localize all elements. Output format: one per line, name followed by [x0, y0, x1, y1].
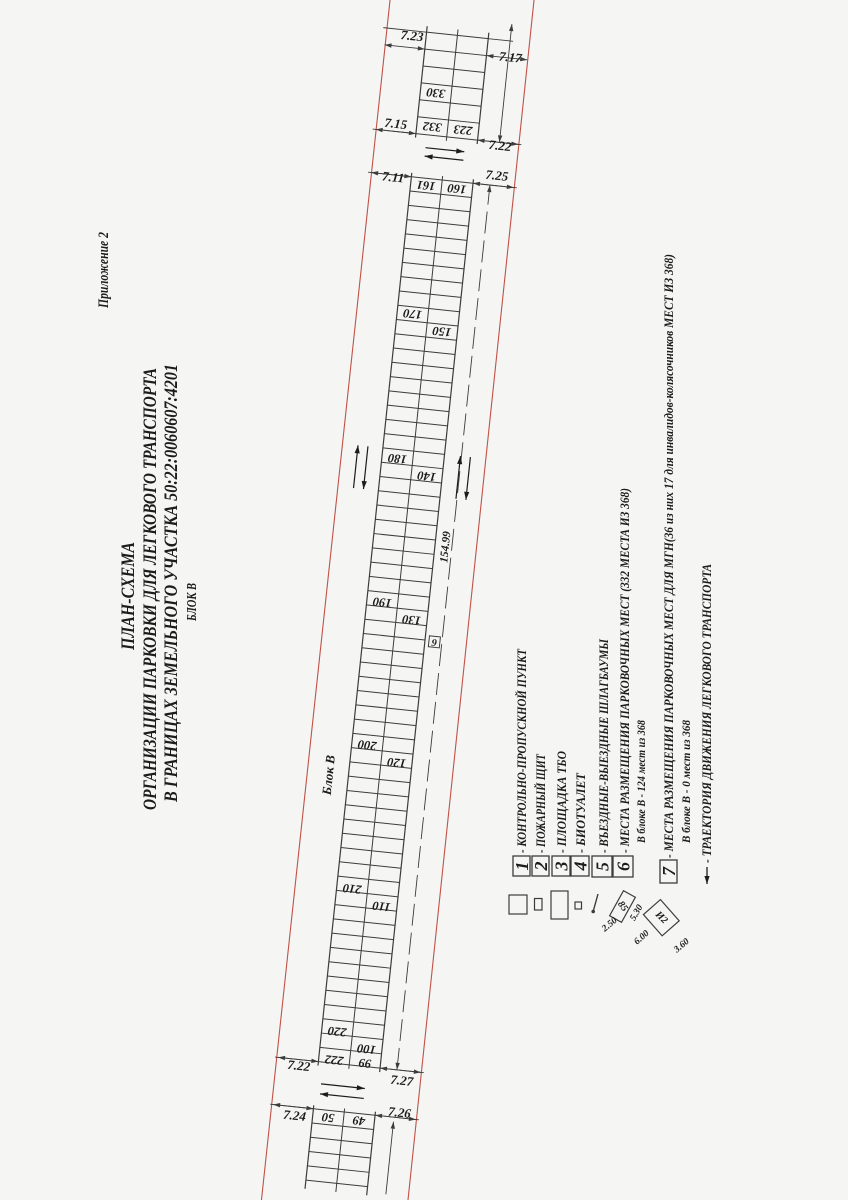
svg-text:190: 190: [371, 594, 392, 610]
svg-text:120: 120: [386, 755, 407, 771]
svg-text:2: 2: [531, 862, 551, 872]
svg-text:7: 7: [659, 866, 679, 876]
svg-text:223: 223: [453, 122, 474, 138]
svg-text:7.15: 7.15: [384, 115, 409, 132]
svg-text:- ВЪЕЗДНЫЕ-ВЫЕЗДНЫЕ ШЛАГБАУМЫ: - ВЪЕЗДНЫЕ-ВЫЕЗДНЫЕ ШЛАГБАУМЫ: [596, 639, 611, 853]
svg-text:7.17: 7.17: [498, 48, 523, 65]
svg-text:99: 99: [357, 1056, 372, 1071]
svg-text:200: 200: [356, 737, 378, 753]
svg-text:- ТРАЕКТОРИЯ ДВИЖЕНИЯ ЛЕГКОВОГ: - ТРАЕКТОРИЯ ДВИЖЕНИЯ ЛЕГКОВОГО ТРАНСПОР…: [699, 564, 714, 863]
svg-text:161: 161: [416, 178, 436, 194]
svg-text:180: 180: [387, 451, 408, 467]
svg-text:В блоке В - 0 мест из 368: В блоке В - 0 мест из 368: [679, 720, 693, 844]
svg-text:7.25: 7.25: [485, 167, 510, 184]
svg-text:- МЕСТА РАЗМЕЩЕНИЯ ПАРКОВОЧНЫХ: - МЕСТА РАЗМЕЩЕНИЯ ПАРКОВОЧНЫХ МЕСТ ДЛЯ …: [661, 254, 676, 858]
svg-text:В блоке В - 124 мест из 368: В блоке В - 124 мест из 368: [634, 720, 648, 844]
svg-text:150: 150: [431, 323, 452, 339]
svg-text:7.11: 7.11: [382, 168, 405, 185]
svg-text:160: 160: [446, 181, 467, 197]
svg-text:100: 100: [356, 1041, 377, 1057]
svg-text:110: 110: [371, 898, 391, 914]
svg-text:- ПЛОЩАДКА ТБО: - ПЛОЩАДКА ТБО: [554, 750, 569, 853]
svg-text:210: 210: [341, 881, 363, 897]
svg-text:- МЕСТА РАЗМЕЩЕНИЯ ПАРКОВОЧНЫХ: - МЕСТА РАЗМЕЩЕНИЯ ПАРКОВОЧНЫХ МЕСТ (332…: [617, 488, 632, 853]
svg-text:170: 170: [402, 306, 423, 322]
svg-text:В ГРАНИЦАХ ЗЕМЕЛЬНОГО УЧАСТКА: В ГРАНИЦАХ ЗЕМЕЛЬНОГО УЧАСТКА 50:22:0060…: [161, 364, 182, 803]
svg-text:- БИОТУАЛЕТ: - БИОТУАЛЕТ: [573, 772, 588, 853]
svg-text:1: 1: [512, 862, 532, 871]
svg-text:7.27: 7.27: [390, 1072, 415, 1089]
svg-text:7.22: 7.22: [287, 1057, 312, 1074]
svg-text:5: 5: [593, 862, 613, 871]
svg-text:6: 6: [614, 862, 634, 871]
svg-text:4: 4: [571, 862, 591, 872]
svg-text:50: 50: [320, 1110, 335, 1125]
svg-text:3: 3: [552, 862, 572, 872]
svg-text:220: 220: [326, 1023, 348, 1039]
svg-text:- ПОЖАРНЫЙ ЩИТ: - ПОЖАРНЫЙ ЩИТ: [533, 753, 548, 853]
svg-text:7.26: 7.26: [387, 1104, 412, 1121]
svg-text:- КОНТРОЛЬНО-ПРОПУСКНОЙ ПУНКТ: - КОНТРОЛЬНО-ПРОПУСКНОЙ ПУНКТ: [514, 648, 529, 853]
svg-text:ПЛАН-СХЕМА: ПЛАН-СХЕМА: [118, 542, 139, 651]
svg-text:7.24: 7.24: [283, 1107, 308, 1124]
svg-text:330: 330: [425, 85, 447, 101]
svg-text:332: 332: [422, 119, 443, 135]
svg-text:Приложение 2: Приложение 2: [96, 232, 112, 309]
svg-text:7.23: 7.23: [400, 27, 425, 44]
svg-text:222: 222: [324, 1052, 345, 1068]
svg-text:ОРГАНИЗАЦИИ ПАРКОВКИ ДЛЯ ЛЕГКО: ОРГАНИЗАЦИИ ПАРКОВКИ ДЛЯ ЛЕГКОВОГО ТРАНС…: [140, 368, 161, 810]
svg-text:49: 49: [351, 1113, 367, 1128]
svg-text:130: 130: [401, 612, 422, 628]
svg-text:140: 140: [416, 468, 437, 484]
svg-text:БЛОК В: БЛОК В: [185, 583, 200, 622]
